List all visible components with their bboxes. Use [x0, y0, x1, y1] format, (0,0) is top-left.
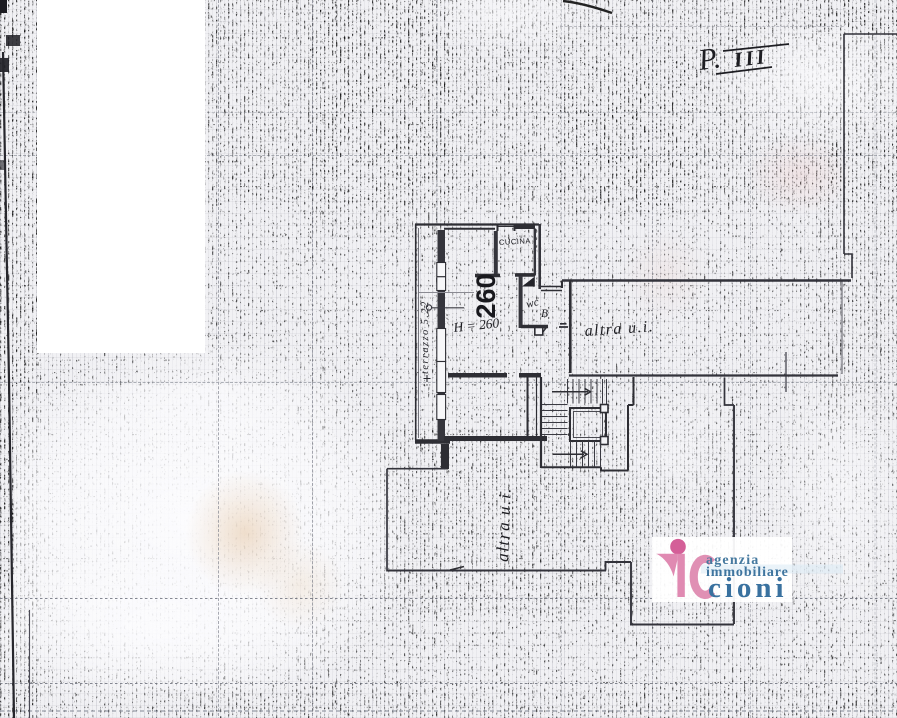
svg-text:cioni: cioni	[708, 572, 788, 604]
